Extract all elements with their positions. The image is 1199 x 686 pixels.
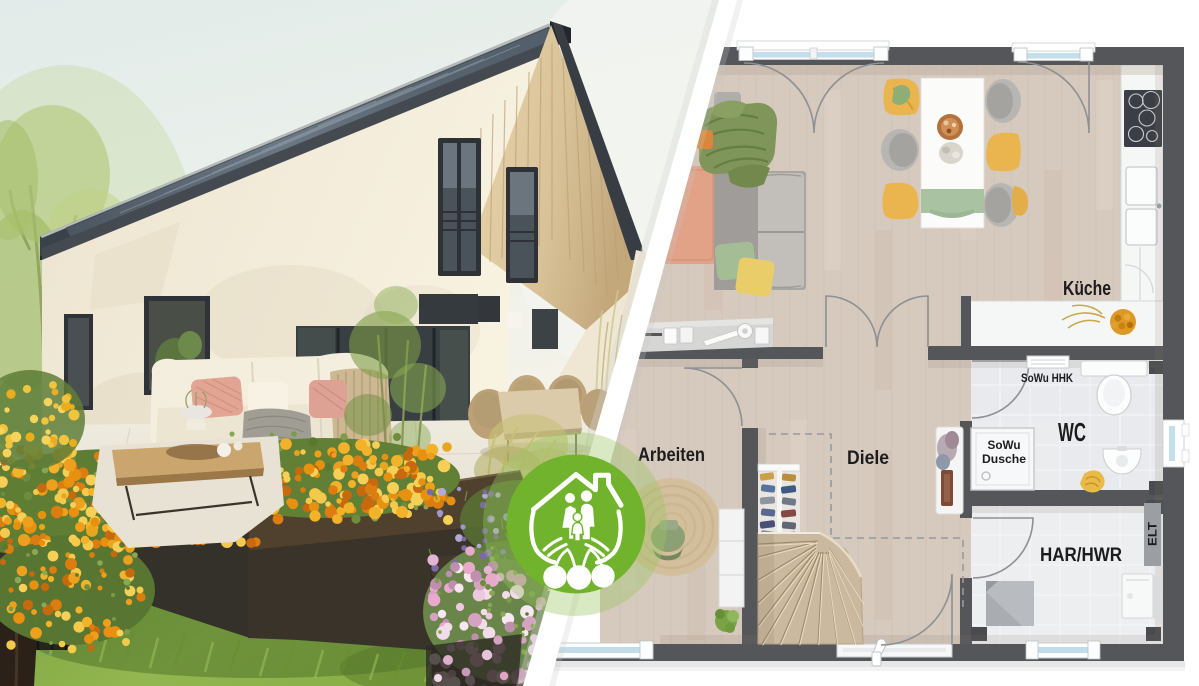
svg-text:Dusche: Dusche bbox=[982, 454, 1026, 466]
svg-text:Arbeiten: Arbeiten bbox=[638, 445, 705, 466]
svg-text:WC: WC bbox=[1058, 417, 1086, 447]
svg-text:Küche: Küche bbox=[1063, 278, 1111, 300]
svg-text:ELT: ELT bbox=[1146, 521, 1160, 546]
svg-text:Diele: Diele bbox=[847, 448, 889, 469]
svg-text:SoWu: SoWu bbox=[988, 440, 1021, 452]
svg-text:SoWu HHK: SoWu HHK bbox=[1021, 373, 1074, 385]
svg-text:HAR/HWR: HAR/HWR bbox=[1040, 545, 1122, 566]
